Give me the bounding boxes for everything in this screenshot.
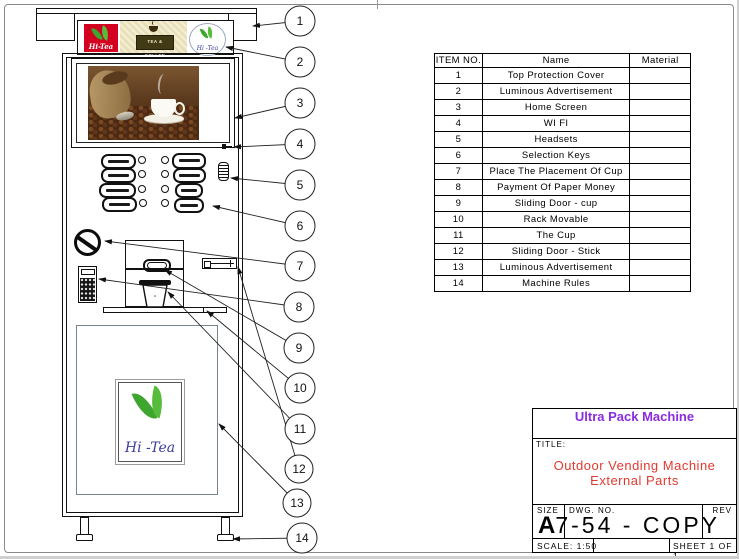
- title-label: TITLE:: [536, 440, 566, 449]
- table-row: 7Place The Placement Of Cup: [435, 164, 691, 180]
- callout-7: 7: [297, 259, 304, 273]
- title-row: TITLE: Outdoor Vending Machine External …: [533, 438, 736, 505]
- table-row: 14Machine Rules: [435, 276, 691, 292]
- drawing-title-line1: Outdoor Vending Machine: [533, 458, 736, 473]
- company-name: Ultra Pack Machine: [533, 409, 736, 439]
- parts-table: ITEM NO. Name Material 1Top Protection C…: [434, 53, 691, 292]
- title-block: Ultra Pack Machine TITLE: Outdoor Vendin…: [532, 408, 737, 553]
- col-name: Name: [482, 54, 630, 68]
- table-row: 6Selection Keys: [435, 148, 691, 164]
- callout-11: 11: [294, 422, 307, 436]
- callout-3: 3: [297, 96, 304, 110]
- table-row: 11The Cup: [435, 228, 691, 244]
- dwg-number: A7-54 - COPY: [538, 512, 720, 540]
- col-item-no: ITEM NO.: [435, 54, 483, 68]
- drawing-sheet: Hi-Tea TEA & COFFEE Hi -Tea: [0, 0, 739, 559]
- callout-10: 10: [293, 381, 307, 395]
- drawing-title: Outdoor Vending Machine External Parts: [533, 458, 736, 488]
- table-row: 4WI FI: [435, 116, 691, 132]
- table-row: 9Sliding Door - cup: [435, 196, 691, 212]
- title-block-footer: SCALE: 1:50 SHEET 1 OF 1: [533, 538, 736, 552]
- table-row: 10Rack Movable: [435, 212, 691, 228]
- callout-2: 2: [297, 55, 304, 69]
- callout-8: 8: [296, 300, 303, 314]
- size-value: A: [538, 512, 555, 539]
- table-row: 8Payment Of Paper Money: [435, 180, 691, 196]
- scale-text: SCALE: 1:50: [537, 541, 597, 551]
- drawing-title-line2: External Parts: [533, 473, 736, 488]
- parts-table-body: 1Top Protection Cover2Luminous Advertise…: [435, 68, 691, 292]
- callout-9: 9: [296, 341, 303, 355]
- col-material: Material: [630, 54, 691, 68]
- parts-table-header: ITEM NO. Name Material: [435, 54, 691, 68]
- table-row: 2Luminous Advertisement: [435, 84, 691, 100]
- callout-13: 13: [290, 496, 304, 510]
- callout-4: 4: [297, 137, 304, 151]
- callout-14: 14: [295, 531, 309, 545]
- table-row: 1Top Protection Cover: [435, 68, 691, 84]
- dwg-row: SIZE DWG. NO. REV A7-54 - COPY: [533, 504, 736, 539]
- callout-5: 5: [297, 178, 304, 192]
- callout-1: 1: [297, 14, 304, 28]
- table-row: 3Home Screen: [435, 100, 691, 116]
- dwg-no-value: 7-54 - COPY: [555, 512, 720, 538]
- callout-12: 12: [292, 462, 306, 476]
- table-row: 13Luminous Advertisement: [435, 260, 691, 276]
- callout-6: 6: [297, 219, 304, 233]
- table-row: 12Sliding Door - Stick: [435, 244, 691, 260]
- table-row: 5Headsets: [435, 132, 691, 148]
